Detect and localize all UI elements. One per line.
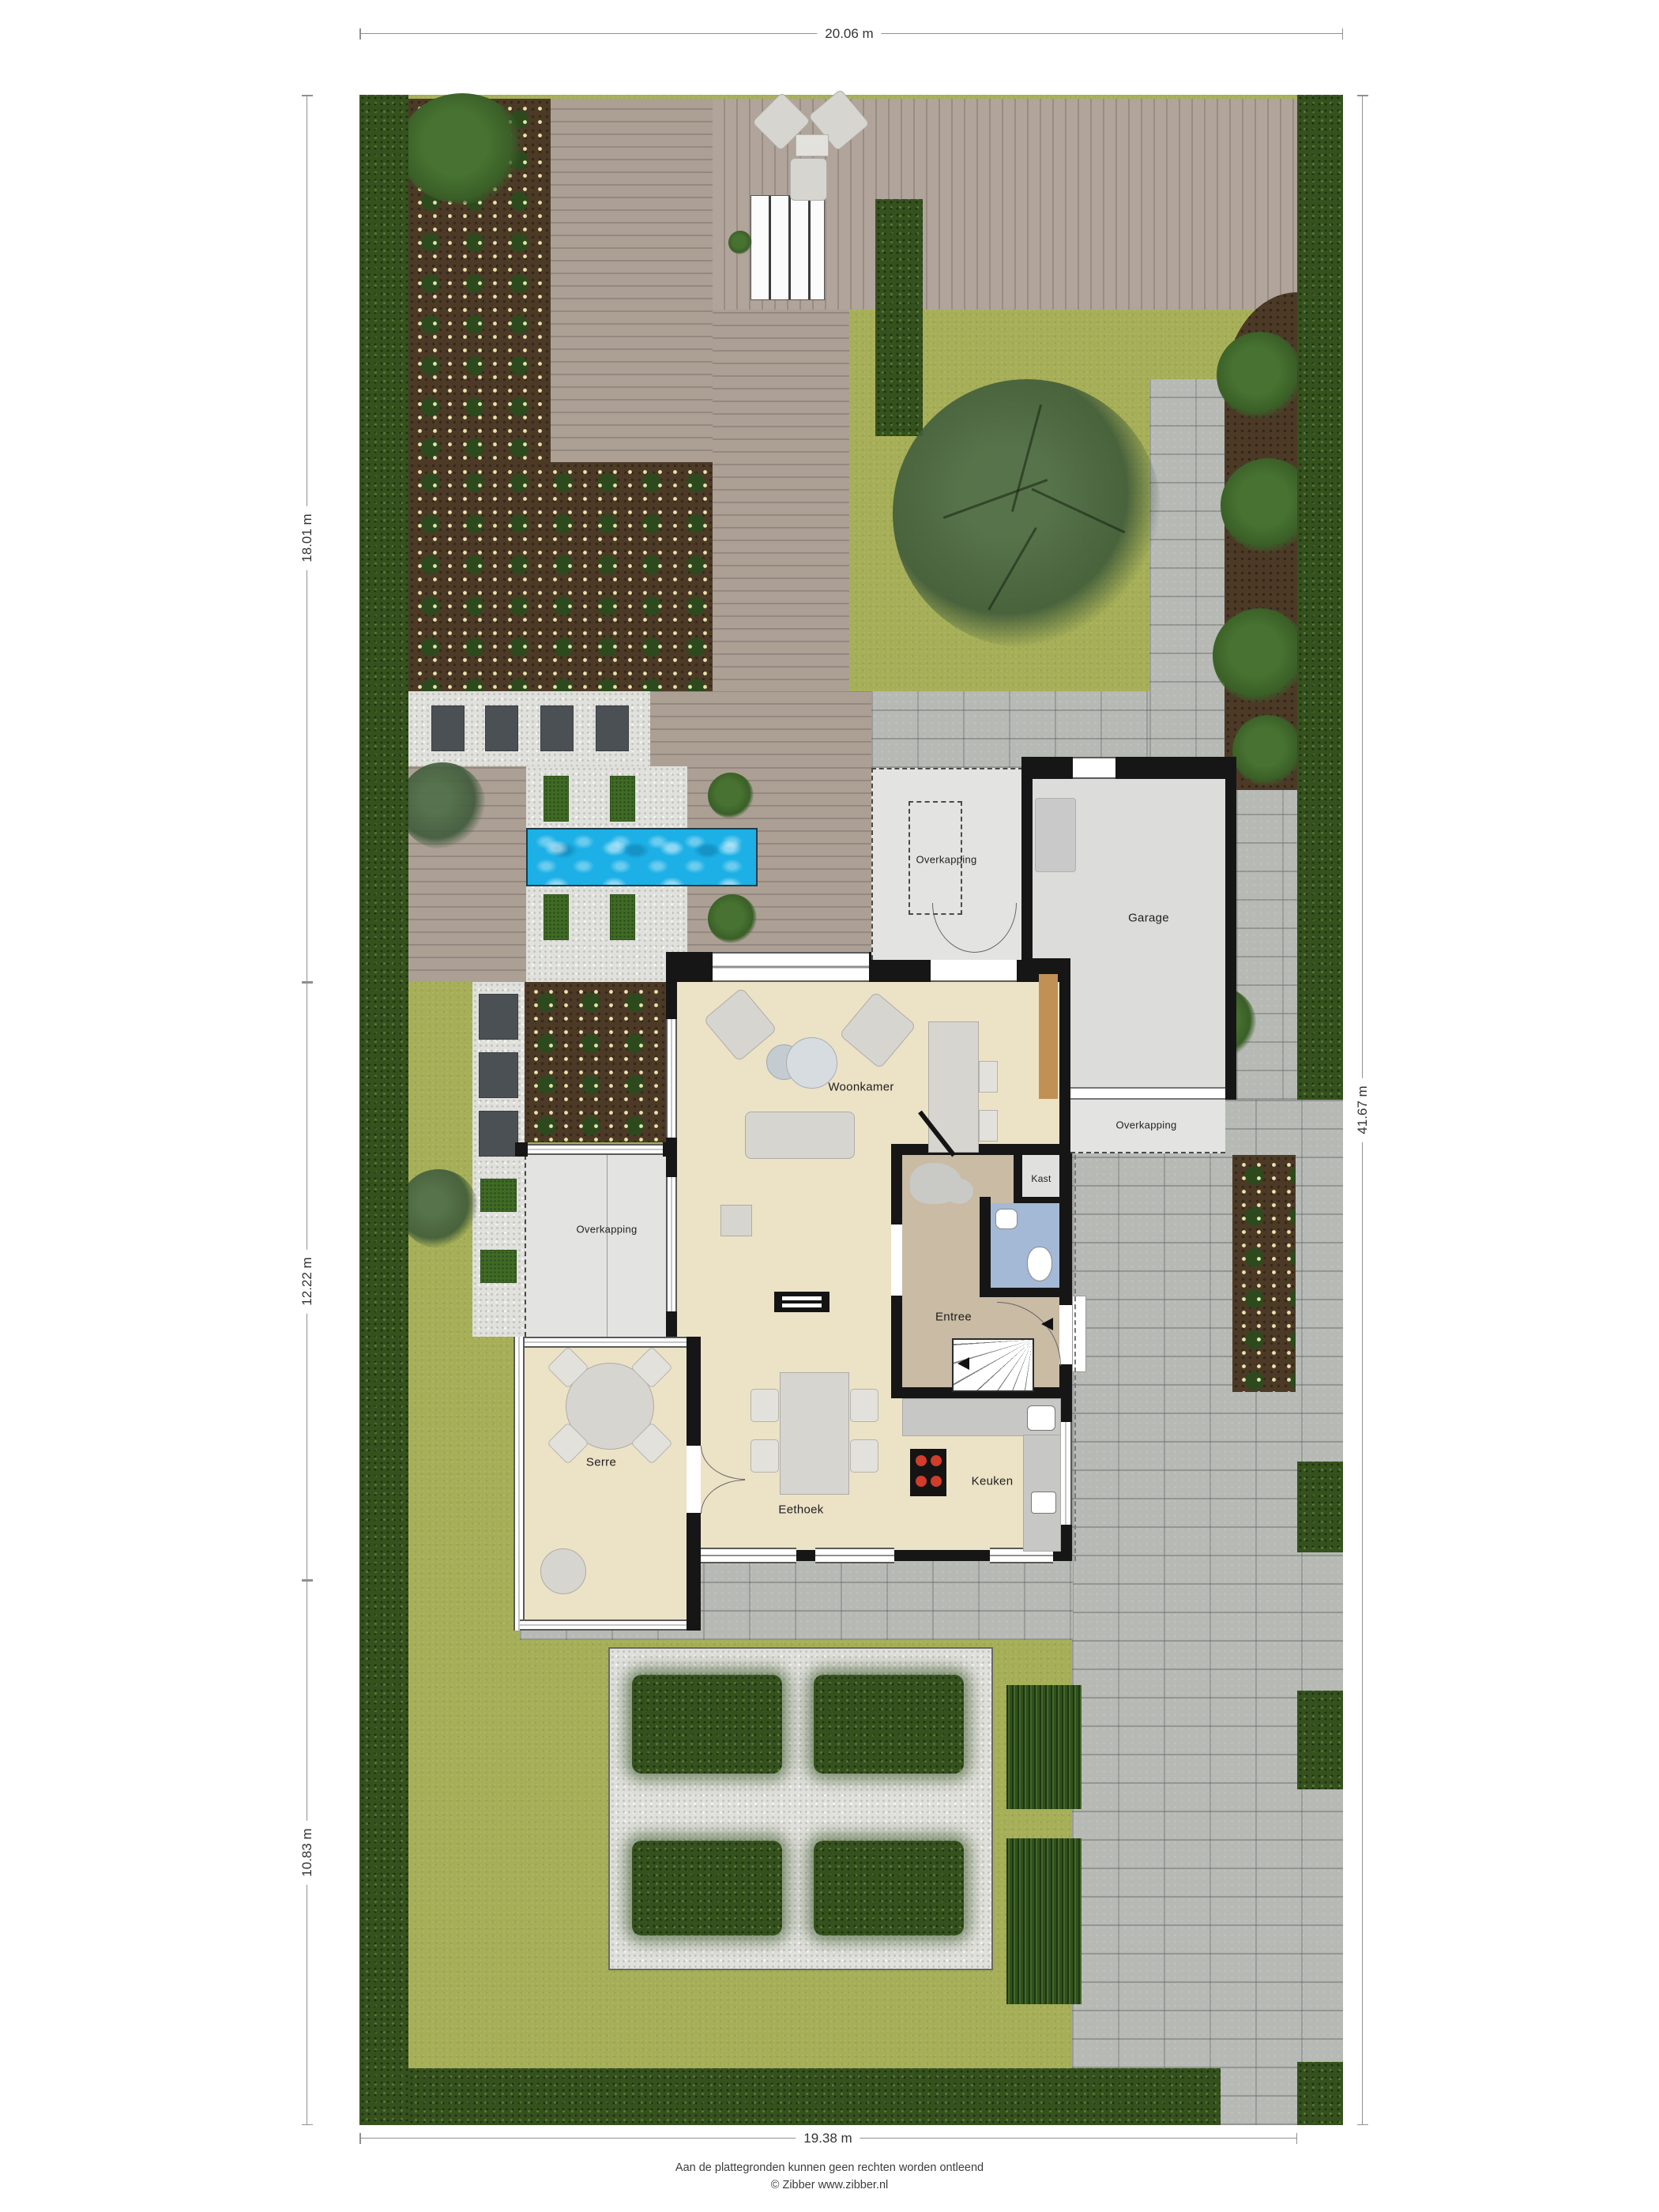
- lounge-chair: [790, 158, 827, 201]
- floor-cushion: [720, 1205, 752, 1236]
- dimension-bottom: 19.38 m: [796, 2130, 860, 2147]
- border-shrub: [1232, 715, 1303, 786]
- label-eethoek: Eethoek: [778, 1503, 823, 1517]
- flower-bed-middle: [408, 462, 713, 691]
- entree-wall-north: [891, 1144, 1072, 1155]
- dimension-left-middle: 12.22 m: [299, 1249, 316, 1313]
- stepping-slab: [431, 705, 465, 751]
- hedge-right-segment: [1297, 1691, 1343, 1789]
- entree-wall-west: [891, 1296, 902, 1398]
- garage-wall-north: [1021, 757, 1236, 779]
- hedge-strip-center: [875, 199, 923, 436]
- small-tree: [399, 1169, 478, 1248]
- deck-table: [796, 134, 829, 156]
- wall-pier: [515, 1142, 528, 1157]
- hedge-right-border: [1297, 95, 1343, 1100]
- stool: [979, 1110, 998, 1142]
- label-serre: Serre: [586, 1456, 616, 1469]
- toilet-basin: [995, 1209, 1018, 1229]
- label-keuken: Keuken: [972, 1475, 1014, 1488]
- toilet-wall: [980, 1197, 991, 1297]
- garden-stairs: [750, 195, 825, 300]
- garage-side-door: [1073, 757, 1115, 779]
- rose-bed: [1232, 1155, 1296, 1392]
- entry-arrow: [1041, 1318, 1053, 1330]
- living-window-north: [713, 952, 869, 982]
- serre-window-west: [513, 1337, 525, 1631]
- sofa: [745, 1112, 855, 1159]
- coat-rack: [945, 1179, 973, 1204]
- house-wall-west: [666, 1311, 677, 1337]
- stepping-slab: [479, 1052, 518, 1098]
- label-overkapping-top: Overkapping: [916, 854, 976, 866]
- border-shrub: [1217, 332, 1303, 419]
- stepping-slab: [596, 705, 629, 751]
- garage-door-post: [1059, 1087, 1070, 1100]
- round-shrub: [708, 894, 757, 943]
- grass-inlay: [610, 894, 635, 940]
- dining-chair: [750, 1439, 779, 1473]
- hedge-block: [632, 1841, 782, 1935]
- grass-inlay: [480, 1250, 517, 1283]
- grass-inlay: [480, 1179, 517, 1212]
- overkapping-left-floor: [525, 1155, 677, 1337]
- serre-wall-east: [687, 1337, 701, 1446]
- oven-appliance: [1031, 1492, 1056, 1514]
- house-wall: [666, 952, 713, 982]
- dimension-right: 41.67 m: [1354, 1078, 1371, 1142]
- grass-inlay: [544, 894, 569, 940]
- footer-copyright: © Zibber www.zibber.nl: [771, 2179, 889, 2191]
- house-wall-west: [666, 1138, 677, 1177]
- hedge-block: [814, 1675, 964, 1774]
- deck-top-left: [551, 99, 713, 462]
- bush-top-left: [399, 93, 525, 204]
- label-overkapping-left: Overkapping: [576, 1224, 637, 1236]
- label-kast: Kast: [1031, 1173, 1051, 1184]
- front-door-opening: [1059, 1305, 1072, 1364]
- grass-border: [1006, 1838, 1082, 2004]
- cooktop: [910, 1449, 946, 1496]
- serre-wall-east: [687, 1513, 701, 1631]
- label-woonkamer: Woonkamer: [828, 1081, 893, 1094]
- stepping-slab: [479, 994, 518, 1040]
- flower-bed-lower: [525, 982, 675, 1142]
- driveway-boundary-line: [1074, 1155, 1076, 1561]
- garage-floor: [1070, 958, 1225, 1087]
- label-overkapping-right: Overkapping: [1115, 1119, 1176, 1131]
- entree-wall-west: [891, 1155, 902, 1224]
- label-garage: Garage: [1128, 912, 1169, 925]
- footer-disclaimer: Aan de plattegronden kunnen geen rechten…: [675, 2161, 984, 2174]
- house-wall-west: [666, 982, 677, 1019]
- dining-table: [780, 1372, 849, 1495]
- garage-storage: [1035, 798, 1076, 872]
- dimension-left-bottom: 10.83 m: [299, 1820, 316, 1884]
- garage-wall-east: [1225, 757, 1236, 1100]
- small-tree: [399, 762, 486, 849]
- south-window: [815, 1548, 894, 1563]
- kast-wall: [1014, 1155, 1022, 1201]
- grass-border: [1006, 1685, 1082, 1809]
- hedge-left-border: [359, 95, 408, 2125]
- dimension-left-top: 18.01 m: [299, 506, 316, 570]
- serre-window-north: [520, 1337, 687, 1348]
- stepping-slab: [485, 705, 518, 751]
- kast-wall: [1014, 1197, 1059, 1203]
- wood-wall-panel: [1039, 974, 1058, 1099]
- water-feature-pool: [526, 828, 758, 886]
- hedge-block: [814, 1841, 964, 1935]
- pavers-garage-side: [1236, 768, 1297, 1100]
- deck-column: [713, 310, 849, 691]
- serre-door-opening: [687, 1446, 701, 1513]
- site-plan: Woonkamer Garage Overkapping Overkapping…: [0, 0, 1659, 2212]
- dimension-top: 20.06 m: [817, 25, 881, 43]
- hedge-right-segment: [1297, 1461, 1343, 1552]
- dining-chair: [850, 1439, 878, 1473]
- hedge-bottom-border: [408, 2068, 1221, 2125]
- toilet-wall: [980, 1288, 1059, 1297]
- tv-cabinet: [774, 1292, 829, 1312]
- stepping-slab: [479, 1111, 518, 1157]
- round-shrub: [708, 773, 754, 818]
- toilet-wc: [1027, 1247, 1052, 1281]
- garage-wall-west: [1021, 757, 1033, 964]
- south-window: [694, 1548, 796, 1563]
- kitchen-window-east: [1059, 1422, 1072, 1525]
- overkapping-left-post-line: [607, 1155, 608, 1337]
- stepping-slab: [540, 705, 574, 751]
- entree-opening: [891, 1224, 902, 1296]
- kitchen-sink: [1027, 1405, 1055, 1431]
- serre-window-south: [520, 1619, 695, 1631]
- stairs-direction-arrow: [957, 1357, 969, 1370]
- serre-rug: [540, 1548, 586, 1594]
- driveway: [1072, 1100, 1343, 2125]
- potted-plant: [728, 231, 752, 254]
- border-shrub: [1213, 608, 1307, 703]
- hedge-right-segment: [1297, 2062, 1343, 2125]
- living-window-west: [666, 1177, 677, 1311]
- hedge-block: [632, 1675, 782, 1774]
- stool: [979, 1061, 998, 1093]
- label-entree: Entree: [935, 1311, 972, 1324]
- deck-mid-strip: [650, 691, 871, 766]
- garage-door: [1070, 1087, 1225, 1100]
- dining-chair: [850, 1389, 878, 1422]
- dining-chair: [750, 1389, 779, 1422]
- living-window-west: [666, 1019, 677, 1138]
- window-band: [525, 1144, 675, 1155]
- grass-inlay: [610, 776, 635, 822]
- large-tree: [893, 379, 1161, 648]
- grass-inlay: [544, 776, 569, 822]
